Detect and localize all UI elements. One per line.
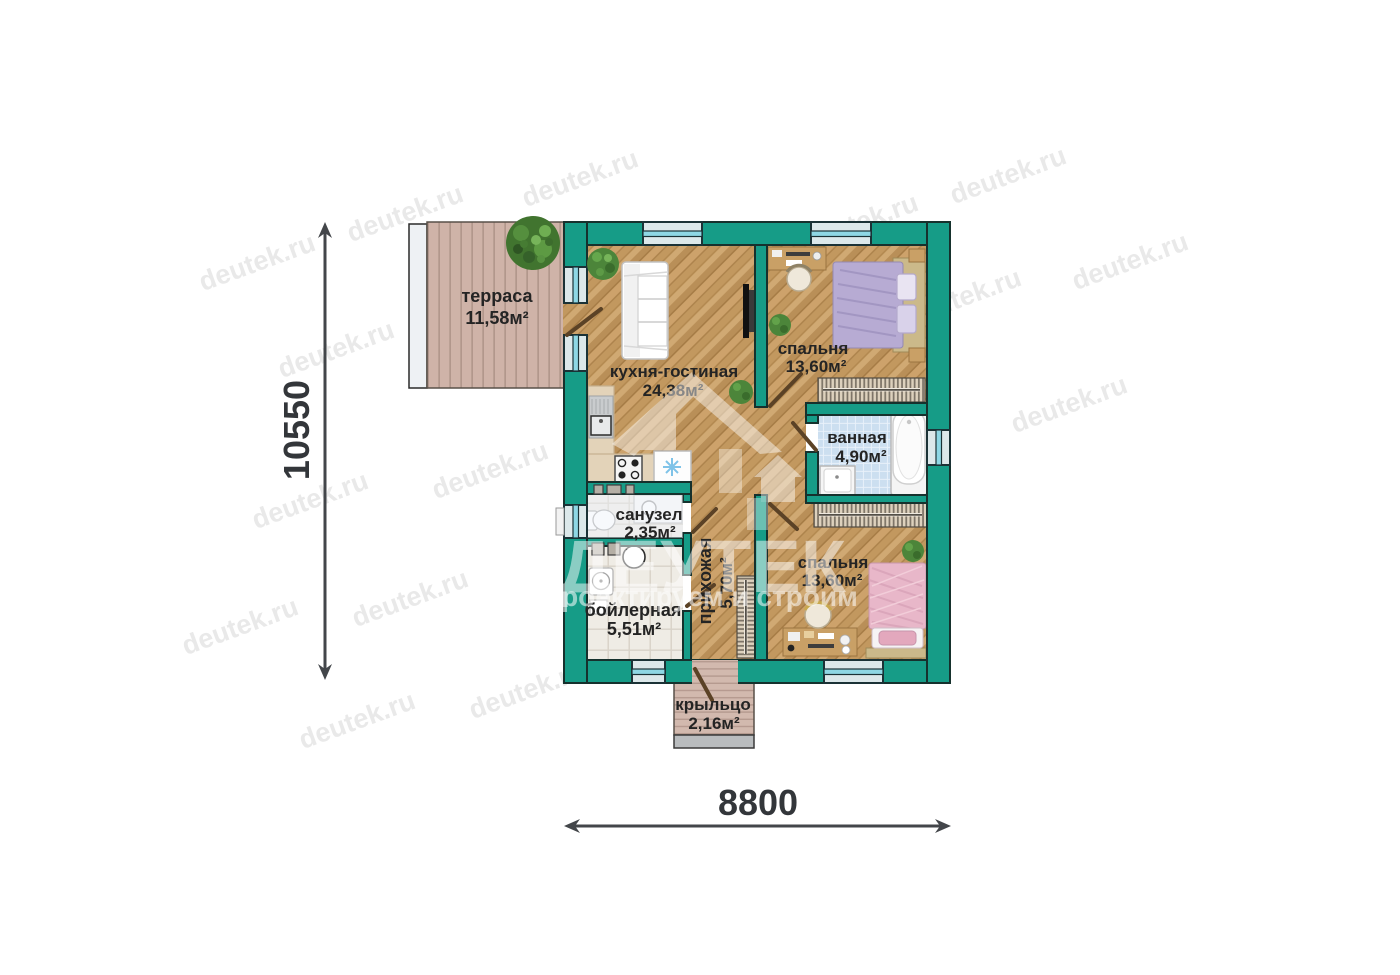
svg-text:8800: 8800 — [718, 782, 798, 823]
svg-text:санузел: санузел — [615, 505, 682, 524]
svg-text:спальня: спальня — [778, 339, 849, 358]
svg-text:ванная: ванная — [827, 428, 887, 447]
svg-text:13,60м²: 13,60м² — [786, 357, 847, 376]
svg-text:крыльцо: крыльцо — [675, 695, 751, 714]
svg-text:11,58м²: 11,58м² — [465, 308, 528, 328]
svg-text:5,51м²: 5,51м² — [607, 619, 661, 639]
svg-text:4,90м²: 4,90м² — [835, 447, 887, 466]
svg-text:проектируем и строим: проектируем и строим — [544, 581, 858, 612]
svg-text:2,16м²: 2,16м² — [688, 714, 740, 733]
svg-text:кухня-гостиная: кухня-гостиная — [610, 362, 738, 381]
svg-text:10550: 10550 — [276, 380, 317, 480]
svg-text:терраса: терраса — [461, 286, 533, 306]
